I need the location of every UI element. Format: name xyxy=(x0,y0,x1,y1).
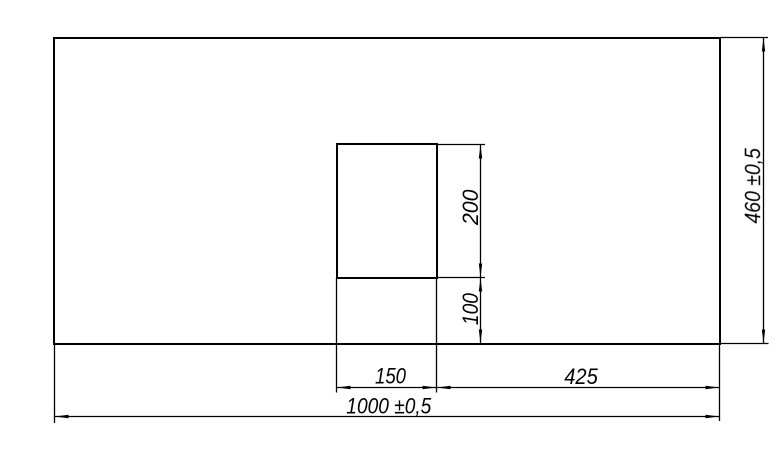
svg-text:1000 ±0,5: 1000 ±0,5 xyxy=(346,393,432,418)
svg-text:100: 100 xyxy=(458,293,483,326)
svg-text:460 ±0,5: 460 ±0,5 xyxy=(740,148,765,224)
svg-text:425: 425 xyxy=(564,364,598,389)
svg-text:150: 150 xyxy=(375,364,406,389)
svg-text:200: 200 xyxy=(458,189,483,226)
